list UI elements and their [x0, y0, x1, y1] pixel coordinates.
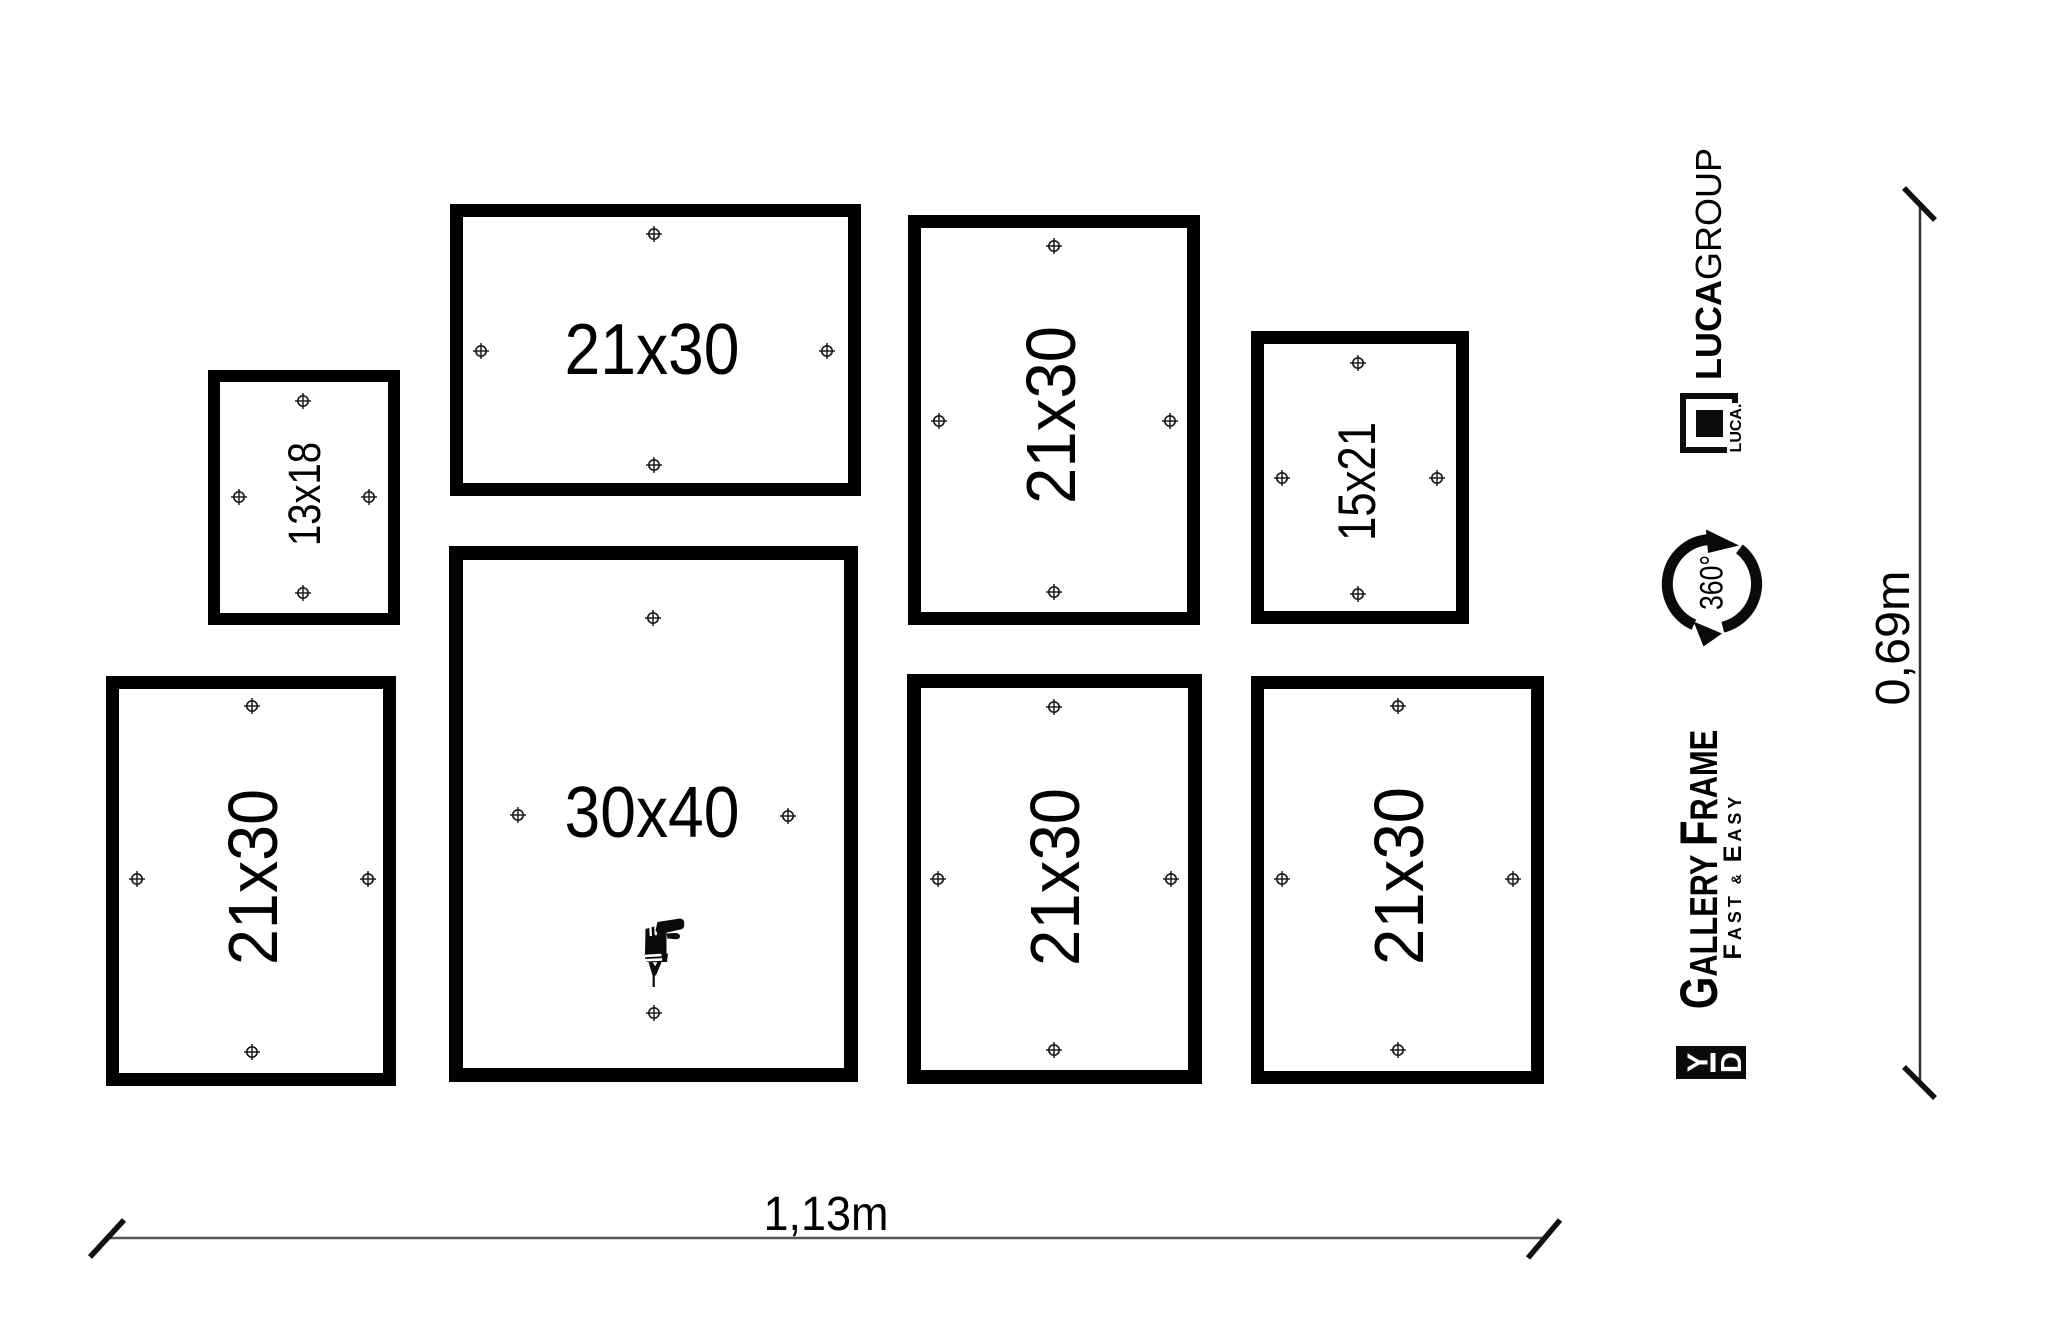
svg-text:Y: Y: [1683, 1053, 1715, 1072]
svg-text:D: D: [1716, 1052, 1748, 1073]
svg-text:21x30: 21x30: [1012, 326, 1090, 504]
svg-text:LUCAGROUP: LUCAGROUP: [1688, 148, 1729, 380]
svg-text:15x21: 15x21: [1328, 422, 1387, 541]
svg-text:21x30: 21x30: [1016, 788, 1094, 966]
svg-text:30x40: 30x40: [565, 773, 740, 853]
svg-text:13x18: 13x18: [279, 442, 330, 546]
svg-text:21x30: 21x30: [565, 310, 740, 390]
svg-text:1,13m: 1,13m: [764, 1188, 889, 1241]
svg-text:0,69m: 0,69m: [1867, 571, 1920, 706]
svg-text:LUCA.: LUCA.: [1728, 404, 1745, 453]
svg-text:360°: 360°: [1694, 555, 1730, 610]
svg-text:21x30: 21x30: [214, 789, 292, 965]
svg-text:GALLERY FRAME: GALLERY FRAME: [1670, 730, 1729, 1009]
svg-text:21x30: 21x30: [1360, 787, 1438, 965]
